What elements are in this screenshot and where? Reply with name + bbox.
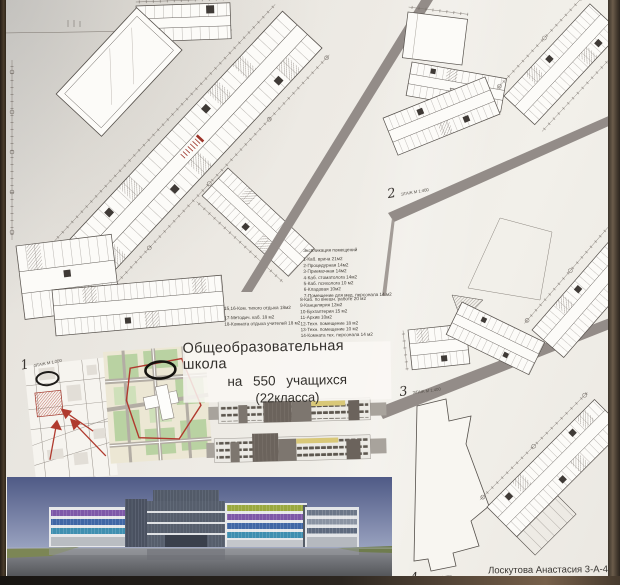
project-title: Общеобразовательная школа на 550 учащихс… [183, 341, 392, 403]
author-signature: Лоскутова Анастасия 3-А-4 [430, 564, 608, 577]
title-line-1: Общеобразовательная школа [182, 337, 391, 373]
floor-plan-3 [402, 216, 620, 374]
poster-photo: Общеобразовательная школа на 550 учащихс… [0, 0, 620, 585]
room-legend: Экспликация помещений 1-Каб. врача 21м2 … [303, 246, 414, 299]
legend-header: Экспликация помещений [303, 246, 413, 254]
legend-item: 15,16-Ком. тихого отдыха 18м2 [224, 304, 334, 312]
room-legend-3: 15,16-Ком. тихого отдыха 18м2 17-Методич… [224, 304, 335, 327]
title-line-3: (22класса) [255, 389, 319, 405]
elevation-strip-2 [206, 430, 387, 463]
photo-edge-left [0, 0, 6, 585]
render-3d [7, 477, 392, 576]
floor-plan-4 [414, 391, 620, 571]
photo-edge-right [608, 0, 620, 585]
title-line-2: на 550 учащихся [227, 372, 347, 389]
floor-plan-1 [2, 0, 331, 336]
site-map-bw [24, 357, 118, 483]
photo-edge-bottom [0, 576, 620, 585]
